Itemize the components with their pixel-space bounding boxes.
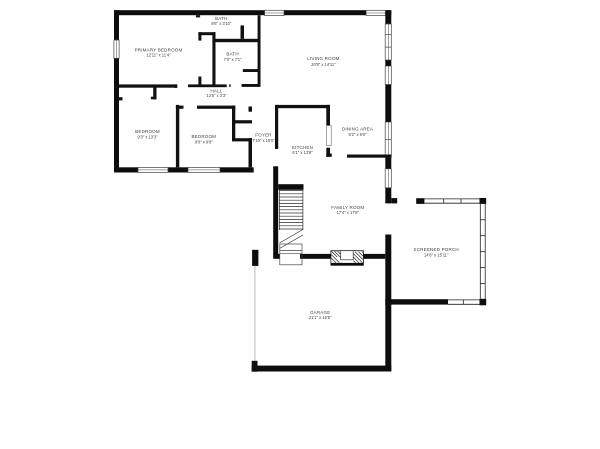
svg-text:9'0" x 9'8": 9'0" x 9'8" [195, 139, 213, 144]
svg-text:DINING AREA: DINING AREA [342, 127, 373, 132]
svg-text:GARAGE: GARAGE [310, 310, 330, 315]
svg-text:9'5" x 3'10": 9'5" x 3'10" [211, 21, 232, 26]
svg-text:14'8" x 15'11": 14'8" x 15'11" [424, 252, 449, 257]
svg-text:BEDROOM: BEDROOM [191, 134, 216, 139]
svg-text:9'2" x 8'0": 9'2" x 8'0" [349, 132, 367, 137]
svg-text:6'1" x 13'8": 6'1" x 13'8" [292, 150, 313, 155]
svg-text:BEDROOM: BEDROOM [135, 129, 160, 134]
svg-text:LIVING ROOM: LIVING ROOM [307, 56, 339, 61]
svg-text:PRIMARY BEDROOM: PRIMARY BEDROOM [135, 47, 183, 52]
svg-text:FOYER: FOYER [255, 132, 272, 137]
svg-text:SCREENED PORCH: SCREENED PORCH [414, 247, 459, 252]
svg-text:17'4" x 17'8": 17'4" x 17'8" [337, 210, 360, 215]
svg-text:13'5" x 3'3": 13'5" x 3'3" [206, 93, 227, 98]
svg-text:FAMILY ROOM: FAMILY ROOM [331, 205, 364, 210]
svg-text:9'3" x 13'3": 9'3" x 13'3" [137, 134, 158, 139]
svg-text:12'11" x 11'4": 12'11" x 11'4" [146, 53, 171, 58]
svg-text:21'1" x 16'5": 21'1" x 16'5" [309, 315, 332, 320]
svg-text:7'0" x 7'1": 7'0" x 7'1" [224, 57, 242, 62]
svg-text:KITCHEN: KITCHEN [292, 145, 313, 150]
svg-text:7'10" x 10'0": 7'10" x 10'0" [252, 138, 275, 143]
svg-text:20'9" x 14'11": 20'9" x 14'11" [311, 62, 336, 67]
